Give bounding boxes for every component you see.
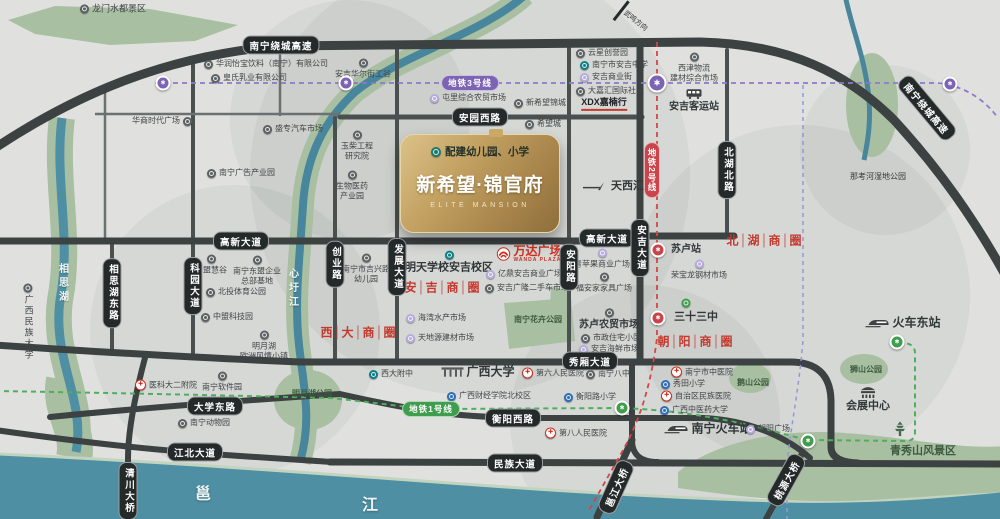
lav-poi-icon bbox=[598, 249, 607, 258]
anji-bus-station-label: 安吉客运站 bbox=[669, 101, 719, 114]
gray-poi-icon bbox=[576, 87, 585, 96]
xdx-brand-label: XDX嘉楠行 bbox=[581, 97, 627, 111]
eshan-park: 鹅山公园 bbox=[737, 378, 769, 388]
hospital-icon: ✚ bbox=[522, 368, 533, 379]
convention-center-icon bbox=[858, 384, 878, 398]
road-label: 发展大道 bbox=[388, 238, 407, 296]
mingtian-school: 明天学校安吉校区 bbox=[405, 251, 493, 276]
auto-market: 盛专汽车市场 bbox=[263, 124, 323, 134]
road-label: 科园大道 bbox=[184, 257, 203, 315]
road-label: 安园西路 bbox=[452, 108, 508, 127]
fuanjia-furniture: 福安家家具广场 bbox=[576, 273, 632, 294]
guanglong-car-market-label: 安吉广隆二手车市场 bbox=[497, 283, 569, 293]
nanning-no8-school-label: 南宁八中 bbox=[598, 369, 630, 379]
xiwangcheng: 希望城 bbox=[525, 119, 561, 129]
metro-station-icon: ✱ bbox=[890, 335, 905, 350]
gray-poi-icon bbox=[218, 372, 227, 381]
gray-poi-icon bbox=[201, 313, 210, 322]
green-poi-icon bbox=[682, 299, 691, 308]
tianxihui-label: 天西汇 bbox=[611, 180, 644, 194]
gray-poi-icon bbox=[600, 273, 609, 282]
gray-poi-icon bbox=[207, 255, 216, 264]
nanning-zoo-label: 南宁动物园 bbox=[190, 418, 230, 428]
ad-industry-park-label: 南宁广告产业园 bbox=[219, 168, 275, 178]
metro-station-icon: ✱ bbox=[615, 401, 630, 416]
yikeda-hospital: ✚医科大二附院 bbox=[135, 380, 197, 391]
road-label: 江北大道 bbox=[167, 443, 223, 462]
project-name-en: ELITE MANSION bbox=[430, 202, 530, 209]
mingyue-euro-town-label: 明月湖欧洲风情小镇 bbox=[240, 342, 288, 362]
xida-affiliated-school-label: 西大附中 bbox=[381, 369, 413, 379]
blue-poi-icon bbox=[564, 393, 573, 402]
water-label: 相思湖 bbox=[55, 263, 70, 305]
convention-center: 会展中心 bbox=[846, 384, 890, 414]
blue-poi-icon bbox=[661, 380, 670, 389]
pagoda-icon bbox=[893, 422, 907, 437]
road-label: 南宁绕城高速 bbox=[242, 36, 319, 55]
qingxiushan-scenic-label: 青秀山风景区 bbox=[890, 445, 956, 459]
tiandiyuan-market: 天地源建材市场 bbox=[406, 333, 474, 343]
teal-poi-icon bbox=[580, 61, 589, 70]
lav-poi-icon bbox=[430, 94, 439, 103]
railway-east-station: 火车东站 bbox=[865, 316, 940, 331]
metro-station-icon: ✱ bbox=[651, 243, 666, 258]
fuanjia-furniture-label: 福安家家具广场 bbox=[576, 284, 632, 294]
road-label: 秀厢大道 bbox=[562, 352, 618, 371]
apple-plaza-label: 青苹果商业广场 bbox=[574, 260, 630, 270]
metro-station-icon: ✱ bbox=[648, 74, 667, 93]
water-label: 邕 bbox=[195, 480, 213, 504]
dajiahui-community-label: 大嘉汇国际社区 bbox=[588, 86, 644, 96]
gray-poi-icon bbox=[206, 288, 215, 297]
gray-poi-icon bbox=[24, 284, 33, 293]
gx-finance-college: 广西财经学院北校区 bbox=[447, 391, 531, 401]
nakaohe-wetland-label: 那考河湿地公园 bbox=[850, 172, 906, 182]
tunli-market-label: 屯里综合农贸市场 bbox=[442, 93, 506, 103]
wanda-plaza: 万达广场WANDA PLAZA bbox=[496, 245, 561, 263]
gray-poi-icon bbox=[353, 131, 362, 140]
rongbaolong-steel: 荣宝龙钢材市场 bbox=[671, 260, 727, 281]
xiutian-primary-label: 秀田小学 bbox=[673, 379, 705, 389]
xiwangcheng-label: 希望城 bbox=[537, 119, 561, 129]
school-badge-icon bbox=[431, 147, 441, 157]
teal-poi-icon bbox=[369, 370, 378, 379]
xijin-logistics-label: 西津物流建材综合市场 bbox=[670, 64, 718, 84]
metro-station-icon: ✱ bbox=[801, 434, 816, 449]
blue-poi-icon bbox=[660, 406, 669, 415]
railway-east-station-label: 火车东站 bbox=[892, 316, 940, 331]
hospital-icon: ✚ bbox=[135, 380, 146, 391]
metro-line-label: 地铁2号线 bbox=[644, 142, 660, 198]
shishan-park-label: 狮山公园 bbox=[850, 365, 882, 375]
lav-poi-icon bbox=[746, 425, 755, 434]
sulu-farm-market: 苏卢农贸市场 bbox=[579, 308, 639, 332]
road-label: 高新大道 bbox=[213, 232, 269, 251]
dajiahui-community: 大嘉汇国际社区 bbox=[576, 86, 644, 96]
sulu-farm-market-label: 苏卢农贸市场 bbox=[579, 319, 639, 332]
road-label: 衡阳西路 bbox=[485, 409, 541, 428]
software-park-label: 南宁软件园 bbox=[202, 383, 242, 393]
ad-industry-park: 南宁广告产业园 bbox=[207, 168, 275, 178]
jixinglu-kindergarten: 南宁市吉兴路幼儿园 bbox=[342, 254, 390, 285]
nanning-railway-station: 南宁火车站 bbox=[664, 422, 751, 437]
bus-icon bbox=[686, 88, 702, 99]
tunli-market: 屯里综合农贸市场 bbox=[430, 93, 506, 103]
road-label: 创业路 bbox=[326, 241, 345, 288]
tiandiyuan-market-label: 天地源建材市场 bbox=[418, 333, 474, 343]
train-icon bbox=[664, 424, 688, 434]
metro-line-label: 地铁1号线 bbox=[402, 401, 460, 417]
teal-poi-icon bbox=[445, 251, 454, 260]
anji-bus-station: 安吉客运站 bbox=[669, 88, 719, 114]
road-label: 北湖北路 bbox=[718, 141, 737, 199]
nanning-railway-station-label: 南宁火车站 bbox=[691, 422, 751, 437]
asean-hq-base: 南宁东盟企业总部基地 bbox=[233, 256, 281, 287]
tianxihui-logo-icon bbox=[580, 182, 608, 193]
sulu-metro-station: 苏卢站 bbox=[671, 244, 701, 257]
gray-poi-icon bbox=[514, 99, 523, 108]
huashang-plaza-label: 华商时代广场 bbox=[132, 116, 180, 126]
gray-poi-icon bbox=[80, 5, 89, 14]
lav-poi-icon bbox=[406, 334, 415, 343]
lav-poi-icon bbox=[486, 270, 495, 279]
mingtian-school-label: 明天学校安吉校区 bbox=[405, 262, 493, 276]
convention-center-label: 会展中心 bbox=[846, 400, 890, 414]
no33-middle-school: 三十三中 bbox=[674, 311, 718, 325]
gx-tcm-university: 广西中医药大学 bbox=[660, 405, 728, 415]
xdx-brand: XDX嘉楠行 bbox=[581, 97, 627, 111]
gray-poi-icon bbox=[204, 60, 213, 69]
xinxiwang-jincheng: 新希望锦城 bbox=[514, 98, 566, 108]
municipal-housing: 市政住宅小区 bbox=[581, 333, 641, 343]
minzu-hospital: ✚自治区民族医院 bbox=[661, 391, 731, 402]
gx-minzu-university: 广西民族大学 bbox=[22, 284, 33, 361]
anji-middle-school-label: 南宁市安吉中学 bbox=[592, 60, 648, 70]
huashang-plaza: 华商时代广场 bbox=[132, 116, 192, 126]
yunxing-park-label: 云星创誉园 bbox=[588, 48, 628, 58]
asean-hq-base-label: 南宁东盟企业总部基地 bbox=[233, 267, 281, 287]
apple-plaza: 青苹果商业广场 bbox=[574, 249, 630, 270]
mingyue-euro-town: 明月湖欧洲风情小镇 bbox=[240, 331, 288, 362]
metro-station-icon: ✱ bbox=[943, 77, 958, 92]
seafood-market-label: 海湾水产市场 bbox=[418, 313, 466, 323]
hospital-icon: ✚ bbox=[545, 428, 556, 439]
wanda-logo-icon bbox=[496, 247, 510, 261]
gray-poi-icon bbox=[260, 331, 269, 340]
train-icon bbox=[865, 318, 889, 328]
eshan-park-label: 鹅山公园 bbox=[737, 378, 769, 388]
auto-market-label: 盛专汽车市场 bbox=[275, 124, 323, 134]
guanglong-car-market: 安吉广隆二手车市场 bbox=[485, 283, 569, 293]
yuchai-institute-label: 玉柴工程研究院 bbox=[341, 142, 373, 162]
gray-poi-icon bbox=[525, 120, 534, 129]
tianxihui: 天西汇 bbox=[580, 180, 644, 194]
software-park: 南宁软件园 bbox=[202, 372, 242, 393]
gray-poi-icon bbox=[362, 254, 371, 263]
gray-poi-icon bbox=[581, 334, 590, 343]
jixinglu-kindergarten-label: 南宁市吉兴路幼儿园 bbox=[342, 265, 390, 285]
gx-finance-college-label: 广西财经学院北校区 bbox=[459, 391, 531, 401]
gray-poi-icon bbox=[183, 117, 192, 126]
yiding-plaza-label: 亿鼎安吉商业广场 bbox=[498, 269, 562, 279]
lav-poi-icon bbox=[695, 260, 704, 269]
minzu-hospital-label: 自治区民族医院 bbox=[675, 391, 731, 401]
bio-pharma-park: 生物医药产业园 bbox=[336, 171, 368, 202]
seafood-market: 海湾水产市场 bbox=[406, 313, 466, 323]
project-callout: 配建幼儿园、小学 bbox=[431, 144, 529, 159]
no33-middle-school-label: 三十三中 bbox=[674, 311, 718, 325]
yikeda-hospital-label: 医科大二附院 bbox=[149, 380, 197, 390]
gray-poi-icon bbox=[485, 284, 494, 293]
wanda-plaza-label: 万达广场WANDA PLAZA bbox=[513, 245, 561, 263]
mingyuehu-park: 明月湖公园 bbox=[292, 389, 332, 399]
anji-middle-school: 南宁市安吉中学 bbox=[580, 60, 648, 70]
project-name: 新希望·锦官府 bbox=[416, 170, 543, 197]
lav-poi-icon bbox=[406, 314, 415, 323]
road-label: 清川大桥 bbox=[119, 462, 138, 519]
yiding-plaza: 亿鼎安吉商业广场 bbox=[486, 269, 562, 279]
wuming-direction-label: 武鸣方向 bbox=[621, 9, 648, 33]
nakaohe-wetland: 那考河湿地公园 bbox=[850, 172, 906, 182]
gray-poi-icon bbox=[253, 256, 262, 265]
road-label: 相思湖东路 bbox=[103, 258, 122, 328]
xida-affiliated-school: 西大附中 bbox=[369, 369, 413, 379]
business-circle-label: 朝阳商圈 bbox=[657, 333, 732, 350]
metro-station-icon: ✱ bbox=[156, 76, 171, 91]
municipal-housing-label: 市政住宅小区 bbox=[593, 333, 641, 343]
yuchai-institute: 玉柴工程研究院 bbox=[341, 131, 373, 162]
gx-minzu-university-label: 广西民族大学 bbox=[22, 295, 33, 361]
shishan-park: 狮山公园 bbox=[850, 365, 882, 375]
longmen-resort-label: 龙门水都景区 bbox=[92, 3, 146, 14]
road-label: 大学东路 bbox=[187, 397, 243, 416]
pagoda-icon bbox=[893, 422, 907, 437]
gray-poi-icon bbox=[207, 169, 216, 178]
huarun-drinks: 华润怡宝饮料（南宁）有限公司 bbox=[204, 59, 328, 69]
university-gate-icon bbox=[441, 367, 463, 378]
anji-biz-street-label: 安吉商业街 bbox=[592, 72, 632, 82]
gray-poi-icon bbox=[576, 49, 585, 58]
beitou-sports-park-label: 北投体育公园 bbox=[218, 287, 266, 297]
no8-people-hospital: ✚第八人民医院 bbox=[545, 428, 607, 439]
location-map: 配建幼儿园、小学 新希望·锦官府 ELITE MANSION 龙门水都景区华润怡… bbox=[0, 0, 1000, 519]
road-label: 民族大道 bbox=[487, 454, 543, 473]
guangxi-university: 广西大学 bbox=[441, 365, 514, 380]
gray-poi-icon bbox=[178, 419, 187, 428]
nanning-no8-school: 南宁八中 bbox=[586, 369, 630, 379]
school-33-icon bbox=[682, 299, 691, 308]
beitou-sports-park: 北投体育公园 bbox=[206, 287, 266, 297]
business-circle-label: 西大商圈 bbox=[320, 324, 395, 341]
bio-pharma-park-label: 生物医药产业园 bbox=[336, 182, 368, 202]
metro-line-label: 地铁3号线 bbox=[441, 75, 499, 91]
chaoyang-plaza-label: 朝阳广场 bbox=[758, 424, 790, 434]
tcm-hospital: ✚南宁市中医院 bbox=[671, 367, 733, 378]
gray-poi-icon bbox=[348, 171, 357, 180]
metro-station-icon: ✱ bbox=[651, 311, 666, 326]
mingyuehu-park-label: 明月湖公园 bbox=[292, 389, 332, 399]
longmen-resort: 龙门水都景区 bbox=[80, 3, 146, 14]
gray-poi-icon bbox=[586, 370, 595, 379]
hengyanglu-primary: 衡阳路小学 bbox=[564, 392, 616, 402]
no8-people-hospital-label: 第八人民医院 bbox=[559, 428, 607, 438]
road-label: 安吉大道 bbox=[631, 219, 650, 277]
guangxi-university-label: 广西大学 bbox=[466, 365, 514, 380]
water-label: 江 bbox=[362, 491, 380, 515]
hospital-icon: ✚ bbox=[671, 367, 682, 378]
gray-poi-icon bbox=[211, 74, 220, 83]
xiutian-primary: 秀田小学 bbox=[661, 379, 705, 389]
yunxing-park: 云星创誉园 bbox=[576, 48, 628, 58]
lav-poi-icon bbox=[580, 73, 589, 82]
gray-poi-icon bbox=[605, 308, 614, 317]
flower-park-label: 南宁花卉公园 bbox=[514, 315, 562, 325]
gray-poi-icon bbox=[263, 125, 272, 134]
hospital-icon: ✚ bbox=[661, 391, 672, 402]
business-circle-label: 安吉商圈 bbox=[404, 279, 479, 296]
hengyanglu-primary-label: 衡阳路小学 bbox=[576, 392, 616, 402]
qingxiushan-scenic: 青秀山风景区 bbox=[890, 445, 956, 459]
zhongmeng-tech-park-label: 中盟科技园 bbox=[213, 312, 253, 322]
metro-station-icon: ✱ bbox=[339, 76, 354, 91]
huangshi-dairy-label: 皇氏乳业有限公司 bbox=[223, 73, 287, 83]
road-label: 高新大道 bbox=[579, 229, 635, 248]
business-circle-label: 北湖商圈 bbox=[726, 232, 801, 249]
nanning-zoo: 南宁动物园 bbox=[178, 418, 230, 428]
rongbaolong-steel-label: 荣宝龙钢材市场 bbox=[671, 271, 727, 281]
zhongmeng-tech-park: 中盟科技园 bbox=[201, 312, 253, 322]
project-card: 配建幼儿园、小学 新希望·锦官府 ELITE MANSION bbox=[400, 134, 560, 233]
xinxiwang-jincheng-label: 新希望锦城 bbox=[526, 98, 566, 108]
huarun-drinks-label: 华润怡宝饮料（南宁）有限公司 bbox=[216, 59, 328, 69]
sulu-metro-station-label: 苏卢站 bbox=[671, 244, 701, 257]
xijin-logistics: 西津物流建材综合市场 bbox=[670, 53, 718, 84]
project-callout-text: 配建幼儿园、小学 bbox=[445, 144, 529, 159]
gray-poi-icon bbox=[690, 53, 699, 62]
gray-poi-icon bbox=[359, 59, 368, 68]
blue-poi-icon bbox=[447, 392, 456, 401]
minzu-avenue bbox=[330, 462, 1000, 464]
gx-tcm-university-label: 广西中医药大学 bbox=[672, 405, 728, 415]
huangshi-dairy: 皇氏乳业有限公司 bbox=[211, 73, 287, 83]
flower-park: 南宁花卉公园 bbox=[514, 315, 562, 325]
water-label: 心圩江 bbox=[285, 268, 300, 310]
tcm-hospital-label: 南宁市中医院 bbox=[685, 367, 733, 377]
chaoyang-plaza: 朝阳广场 bbox=[746, 424, 790, 434]
anji-biz-street: 安吉商业街 bbox=[580, 72, 632, 82]
road-label: 安阳路 bbox=[560, 244, 579, 291]
